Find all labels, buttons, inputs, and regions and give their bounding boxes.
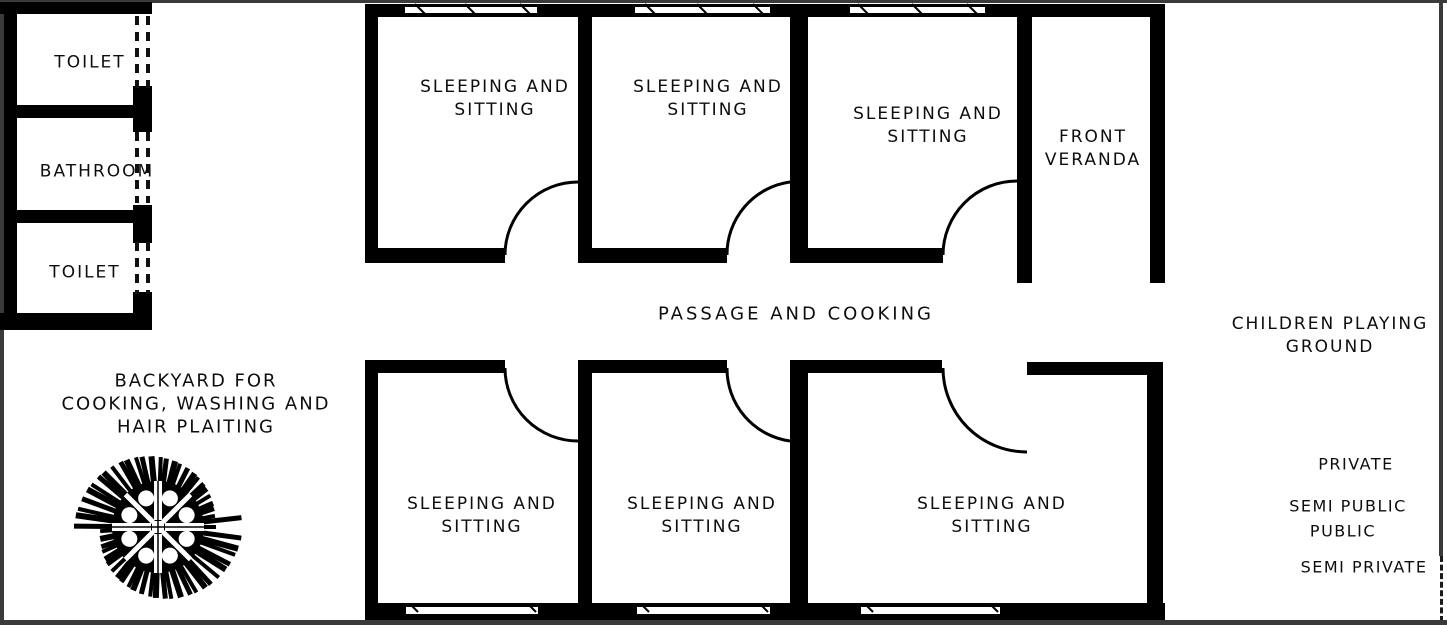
label-line: SLEEPING AND: [627, 494, 777, 514]
bottom-divider-2-3: [790, 360, 808, 620]
label-line: SLEEPING AND: [917, 494, 1067, 514]
label-toilet-top: TOILET: [54, 52, 125, 75]
label-zone-public: PUBLIC: [1310, 520, 1376, 543]
label-bathroom: BATHROOM: [40, 161, 154, 184]
label-sleeping-top-2: SLEEPING AND SITTING: [633, 76, 783, 122]
toilet-block-left-wall: [4, 2, 17, 330]
label-line: SITTING: [661, 517, 742, 537]
label-line: VERANDA: [1045, 150, 1141, 170]
label-zone-semi-public: SEMI PUBLIC: [1289, 495, 1407, 518]
label-sleeping-top-1: SLEEPING AND SITTING: [420, 76, 570, 122]
bottom-room-3-right-wall: [1147, 362, 1163, 620]
label-sleeping-bottom-3: SLEEPING AND SITTING: [917, 493, 1067, 539]
label-line: SITTING: [951, 517, 1032, 537]
top-room-1-bottom-wall: [365, 248, 505, 263]
veranda-left-wall: [1017, 4, 1032, 283]
top-room-3-bottom-wall: [808, 248, 943, 263]
label-line: SLEEPING AND: [420, 77, 570, 97]
label-line: GROUND: [1286, 337, 1375, 357]
toilet-bottom-bottom-wall: [0, 313, 152, 330]
plan-border-right-dashed: [1440, 556, 1443, 622]
toilet-top-bottom-wall: [4, 105, 133, 118]
floor-plan: TOILET BATHROOM TOILET SLEEPING AND SITT…: [0, 0, 1447, 628]
label-sleeping-bottom-1: SLEEPING AND SITTING: [407, 493, 557, 539]
label-front-veranda: FRONT VERANDA: [1045, 126, 1141, 172]
bottom-divider-1-2: [578, 360, 592, 620]
label-line: SLEEPING AND: [407, 494, 557, 514]
top-room-1-left-wall: [365, 4, 378, 263]
top-room-2-bottom-wall: [592, 248, 727, 263]
bathroom-bottom-wall: [4, 210, 152, 223]
top-divider-2-3: [790, 4, 808, 263]
plan-border-top: [0, 0, 1447, 3]
label-zone-private: PRIVATE: [1318, 453, 1394, 476]
label-passage-cooking: PASSAGE AND COOKING: [658, 303, 934, 326]
bottom-room-3-top-wall-left: [808, 360, 942, 373]
top-divider-1-2: [578, 4, 592, 263]
label-line: BACKYARD FOR: [114, 371, 277, 392]
label-backyard: BACKYARD FOR COOKING, WASHING AND HAIR P…: [61, 370, 330, 439]
label-line: SLEEPING AND: [853, 104, 1003, 124]
label-line: SITTING: [454, 100, 535, 120]
window-top-room-2: [635, 7, 770, 13]
veranda-right-wall: [1150, 4, 1165, 283]
label-zone-semi-private: SEMI PRIVATE: [1301, 556, 1428, 579]
label-children-playing-ground: CHILDREN PLAYING GROUND: [1232, 313, 1429, 359]
label-line: SITTING: [441, 517, 522, 537]
bottom-room-1-top-wall: [365, 360, 505, 373]
toilet-block-junction-1: [133, 86, 152, 132]
toilet-block-top-wall: [0, 2, 152, 14]
label-line: FRONT: [1059, 127, 1127, 147]
label-line: SLEEPING AND: [633, 77, 783, 97]
tree-icon: [74, 456, 241, 598]
label-line: SITTING: [667, 100, 748, 120]
label-line: COOKING, WASHING AND: [61, 394, 330, 415]
label-sleeping-bottom-2: SLEEPING AND SITTING: [627, 493, 777, 539]
bottom-room-3-top-wall-right: [1027, 362, 1163, 375]
label-toilet-bottom: TOILET: [49, 262, 120, 285]
label-line: HAIR PLAITING: [117, 417, 275, 438]
plan-border-right: [1439, 0, 1443, 556]
toilet-block-junction-2: [133, 205, 152, 243]
toilet-screen-dashed-walls: [137, 16, 148, 294]
bottom-room-1-left-wall: [365, 360, 378, 620]
bottom-room-2-top-wall: [592, 360, 727, 373]
window-bottom-room-3: [861, 607, 1000, 614]
window-top-room-1: [405, 7, 537, 13]
toilet-block-junction-3: [133, 292, 152, 313]
label-line: SITTING: [887, 127, 968, 147]
plan-border-bottom: [0, 620, 1447, 625]
window-bottom-room-1: [406, 607, 538, 614]
window-bottom-room-2: [637, 607, 770, 614]
label-sleeping-top-3: SLEEPING AND SITTING: [853, 103, 1003, 149]
label-line: CHILDREN PLAYING: [1232, 314, 1429, 334]
window-top-room-3: [850, 7, 985, 13]
